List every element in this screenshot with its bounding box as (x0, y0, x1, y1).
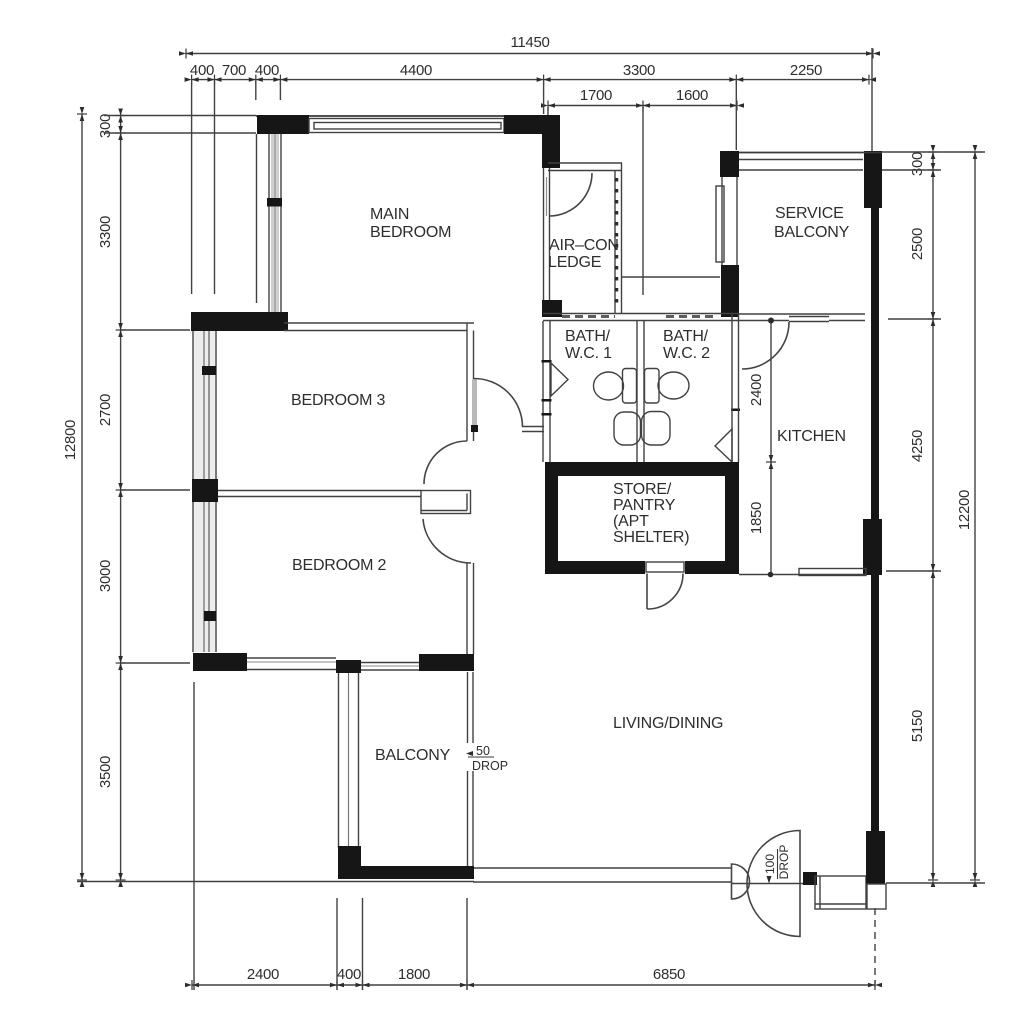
svg-text:50: 50 (476, 744, 490, 758)
svg-text:3000: 3000 (97, 560, 114, 592)
svg-text:W.C. 1: W.C. 1 (565, 345, 612, 362)
svg-text:KITCHEN: KITCHEN (777, 428, 846, 445)
svg-text:DROP: DROP (777, 845, 791, 880)
svg-text:400: 400 (190, 62, 214, 79)
svg-text:BATH/: BATH/ (565, 328, 611, 345)
svg-text:STORE/: STORE/ (613, 481, 672, 498)
svg-text:300: 300 (909, 152, 926, 176)
svg-text:BEDROOM 3: BEDROOM 3 (291, 392, 386, 409)
svg-text:BALCONY: BALCONY (774, 224, 850, 241)
svg-text:DROP: DROP (472, 759, 508, 773)
svg-text:4400: 4400 (400, 62, 432, 79)
svg-text:PANTRY: PANTRY (613, 497, 676, 514)
svg-text:AIR–CON: AIR–CON (549, 237, 619, 254)
svg-text:6850: 6850 (653, 966, 685, 983)
svg-text:BALCONY: BALCONY (375, 747, 451, 764)
svg-text:2400: 2400 (748, 374, 765, 406)
svg-text:BEDROOM 2: BEDROOM 2 (292, 557, 387, 574)
svg-text:LEDGE: LEDGE (548, 254, 601, 271)
svg-text:3300: 3300 (623, 62, 655, 79)
svg-text:LIVING/DINING: LIVING/DINING (613, 715, 723, 732)
svg-text:SHELTER): SHELTER) (613, 529, 689, 546)
svg-text:400: 400 (337, 966, 361, 983)
svg-text:2400: 2400 (247, 966, 279, 983)
svg-text:1800: 1800 (398, 966, 430, 983)
svg-text:BEDROOM: BEDROOM (370, 224, 451, 241)
svg-text:1700: 1700 (580, 87, 612, 104)
svg-text:SERVICE: SERVICE (775, 205, 844, 222)
svg-text:4250: 4250 (909, 430, 926, 462)
svg-text:2500: 2500 (909, 228, 926, 260)
svg-text:5150: 5150 (909, 710, 926, 742)
svg-text:MAIN: MAIN (370, 206, 409, 223)
svg-text:400: 400 (255, 62, 279, 79)
svg-text:700: 700 (222, 62, 246, 79)
svg-text:100: 100 (763, 854, 777, 874)
svg-text:1850: 1850 (748, 502, 765, 534)
svg-text:2700: 2700 (97, 394, 114, 426)
svg-text:300: 300 (97, 114, 114, 138)
svg-text:1600: 1600 (676, 87, 708, 104)
svg-text:12800: 12800 (62, 420, 79, 460)
svg-text:12200: 12200 (956, 490, 973, 530)
svg-text:2250: 2250 (790, 62, 822, 79)
svg-text:BATH/: BATH/ (663, 328, 709, 345)
svg-text:3500: 3500 (97, 756, 114, 788)
svg-text:(APT: (APT (613, 513, 649, 530)
svg-text:3300: 3300 (97, 216, 114, 248)
svg-text:11450: 11450 (510, 34, 549, 51)
svg-text:W.C. 2: W.C. 2 (663, 345, 710, 362)
